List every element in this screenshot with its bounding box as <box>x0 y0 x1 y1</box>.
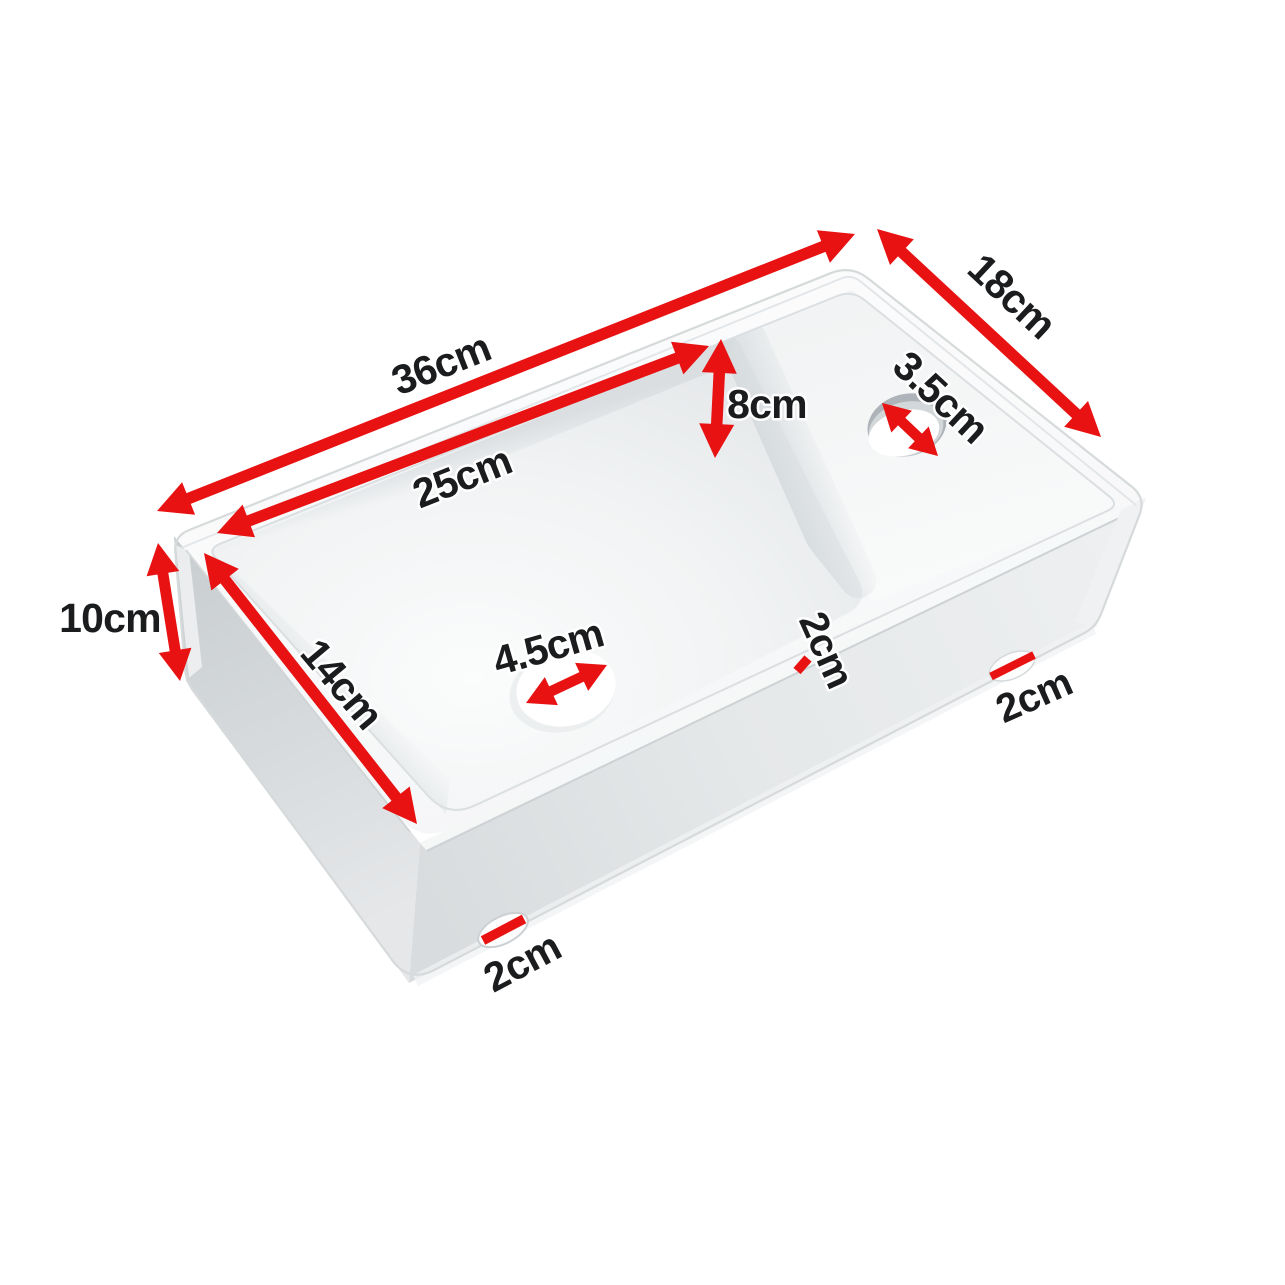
svg-text:10cm: 10cm <box>59 595 161 641</box>
svg-text:8cm: 8cm <box>727 381 807 427</box>
